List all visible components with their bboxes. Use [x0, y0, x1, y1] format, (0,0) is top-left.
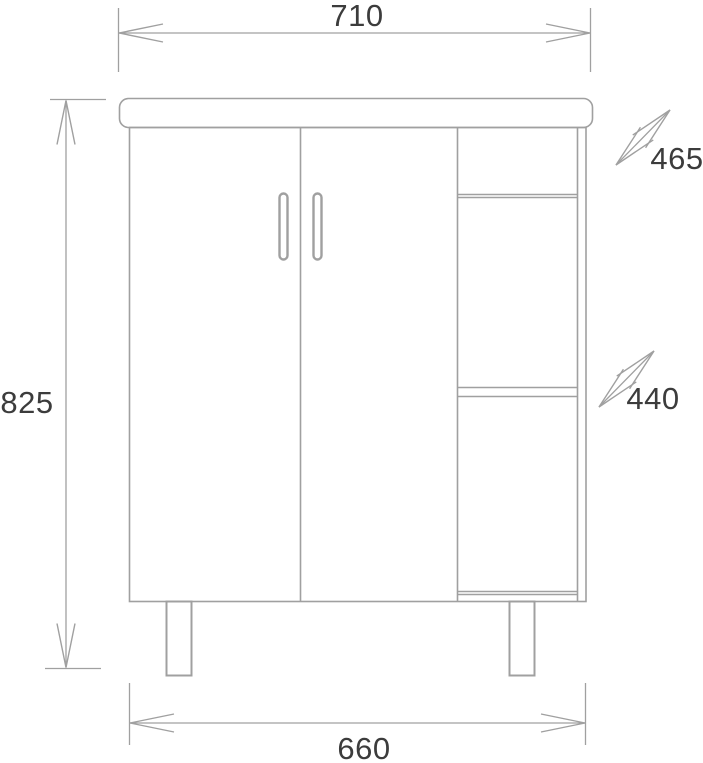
drawing-svg: 710 825 660 465 440: [0, 0, 703, 763]
dim-upper-depth-label: 465: [650, 141, 703, 176]
cabinet-technical-drawing: 710 825 660 465 440: [0, 0, 703, 763]
cabinet-outline: [120, 99, 593, 676]
leg-right: [510, 602, 535, 676]
cabinet-body: [130, 128, 587, 602]
door-handle-right: [314, 194, 322, 260]
dim-left-height-label: 825: [0, 385, 53, 420]
countertop: [120, 99, 593, 128]
dim-lower-depth-label: 440: [626, 381, 679, 416]
door-handle-left: [280, 194, 288, 260]
dim-bottom-width-label: 660: [337, 731, 390, 763]
dim-top-width-label: 710: [330, 0, 383, 33]
leg-left: [167, 602, 192, 676]
